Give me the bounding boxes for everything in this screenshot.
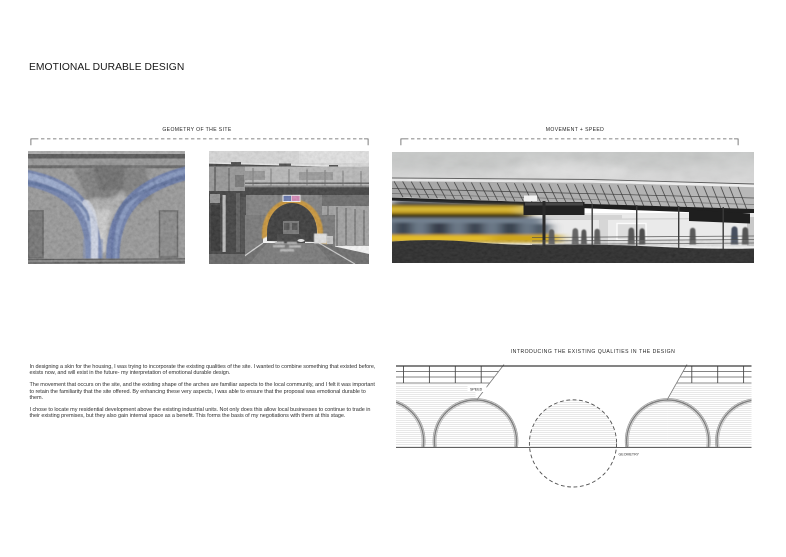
svg-text:SPEED: SPEED [470, 388, 483, 392]
svg-text:GEOMETRY: GEOMETRY [619, 453, 640, 457]
